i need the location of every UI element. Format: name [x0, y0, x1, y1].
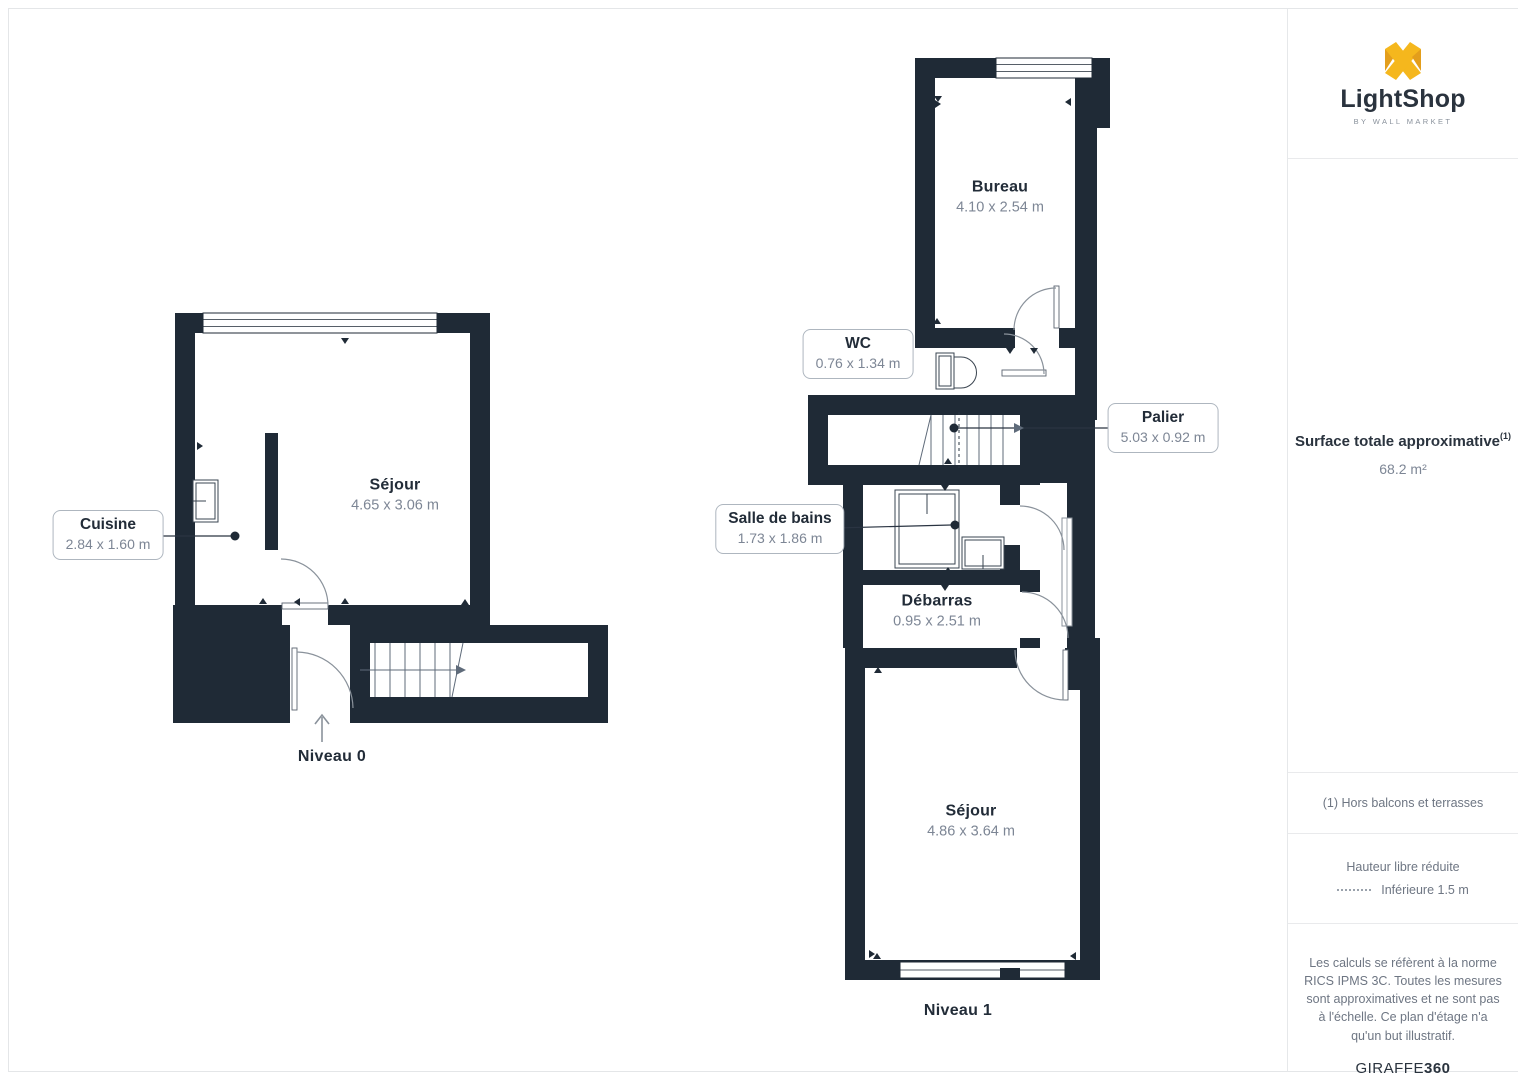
- room-name: Palier: [1121, 409, 1206, 427]
- sejour1-door: [1015, 650, 1068, 700]
- giraffe-text: GIRAFFE: [1355, 1060, 1424, 1077]
- floor-label-niveau-0: Niveau 0: [298, 748, 366, 766]
- surface-title-sup: (1): [1500, 431, 1511, 441]
- room-label-bureau: Bureau 4.10 x 2.54 m: [956, 179, 1044, 216]
- room-dims: 4.65 x 3.06 m: [351, 498, 439, 514]
- footnote-section: (1) Hors balcons et terrasses: [1288, 772, 1518, 833]
- tag-box-wc: WC 0.76 x 1.34 m: [803, 329, 914, 379]
- legend-section: Hauteur libre réduite Inférieure 1.5 m: [1288, 833, 1518, 923]
- wall-ticks-0: [197, 338, 469, 611]
- toilet-fixture: [936, 353, 977, 389]
- bathroom-sink-fixture: [962, 537, 1004, 569]
- entry-door: [292, 648, 353, 710]
- room-label-sejour-1: Séjour 4.86 x 3.64 m: [927, 803, 1015, 840]
- stairs-niveau-0: [360, 643, 466, 697]
- window-side-strip: [1062, 518, 1072, 626]
- room-name: Bureau: [956, 179, 1044, 197]
- sdb-door-arc: [1020, 506, 1064, 550]
- room-dims: 0.76 x 1.34 m: [816, 355, 901, 371]
- kitchen-sink-fixture: [193, 480, 218, 522]
- room-name: Salle de bains: [728, 510, 831, 528]
- bureau-door: [1014, 286, 1059, 330]
- room-dims: 4.86 x 3.64 m: [927, 824, 1015, 840]
- legend-item-text: Inférieure 1.5 m: [1381, 883, 1469, 897]
- footnote-text: (1) Hors balcons et terrasses: [1323, 796, 1483, 810]
- kitchen-door: [281, 559, 328, 625]
- window-sejour-1: [900, 962, 1065, 980]
- window-sejour-0: [203, 313, 437, 333]
- entry-arrow-icon: [315, 715, 329, 742]
- surface-total-value: 68.2 m²: [1288, 461, 1518, 477]
- tag-box-palier: Palier 5.03 x 0.92 m: [1108, 403, 1219, 453]
- info-sidebar: LightShop BY WALL MARKET Surface totale …: [1287, 9, 1518, 1071]
- dotted-line-icon: [1337, 889, 1371, 891]
- cuisine-leader-line: [153, 532, 240, 541]
- legal-disclaimer-text: Les calculs se réfèrent à la norme RICS …: [1304, 954, 1502, 1045]
- room-dims: 0.95 x 2.51 m: [893, 614, 981, 630]
- lightshop-logo-icon: [1379, 41, 1427, 81]
- floor-plan-page: Séjour 4.65 x 3.06 m Cuisine 2.84 x 1.60…: [0, 0, 1526, 1080]
- room-name: Cuisine: [66, 516, 151, 534]
- logo-tagline: BY WALL MARKET: [1354, 117, 1453, 126]
- surface-total-title: Surface totale approximative(1): [1288, 431, 1518, 450]
- logo-wordmark: LightShop: [1340, 85, 1465, 114]
- giraffe360-wordmark: GIRAFFE360: [1288, 1060, 1518, 1077]
- window-bureau: [996, 58, 1092, 78]
- room-name: Débarras: [893, 593, 981, 611]
- debarras-door-arc: [1022, 592, 1068, 638]
- room-label-debarras: Débarras 0.95 x 2.51 m: [893, 593, 981, 630]
- shower-fixture: [895, 490, 959, 568]
- surface-title-text: Surface totale approximative: [1295, 433, 1500, 450]
- surface-section: Surface totale approximative(1) 68.2 m²: [1288, 158, 1518, 772]
- room-dims: 4.10 x 2.54 m: [956, 200, 1044, 216]
- room-name: Séjour: [351, 477, 439, 495]
- room-name: WC: [816, 335, 901, 353]
- legal-section: Les calculs se réfèrent à la norme RICS …: [1288, 923, 1518, 1071]
- tag-box-cuisine: Cuisine 2.84 x 1.60 m: [53, 510, 164, 560]
- logo-section: LightShop BY WALL MARKET: [1288, 9, 1518, 158]
- tag-box-salle-de-bains: Salle de bains 1.73 x 1.86 m: [715, 504, 844, 554]
- legend-title: Hauteur libre réduite: [1346, 860, 1459, 874]
- room-dims: 1.73 x 1.86 m: [728, 530, 831, 546]
- room-dims: 5.03 x 0.92 m: [1121, 429, 1206, 445]
- giraffe-360-text: 360: [1424, 1060, 1451, 1077]
- room-name: Séjour: [927, 803, 1015, 821]
- room-label-sejour-0: Séjour 4.65 x 3.06 m: [351, 477, 439, 514]
- stairs-palier: [919, 412, 1003, 468]
- room-dims: 2.84 x 1.60 m: [66, 536, 151, 552]
- floor-label-niveau-1: Niveau 1: [924, 1002, 992, 1020]
